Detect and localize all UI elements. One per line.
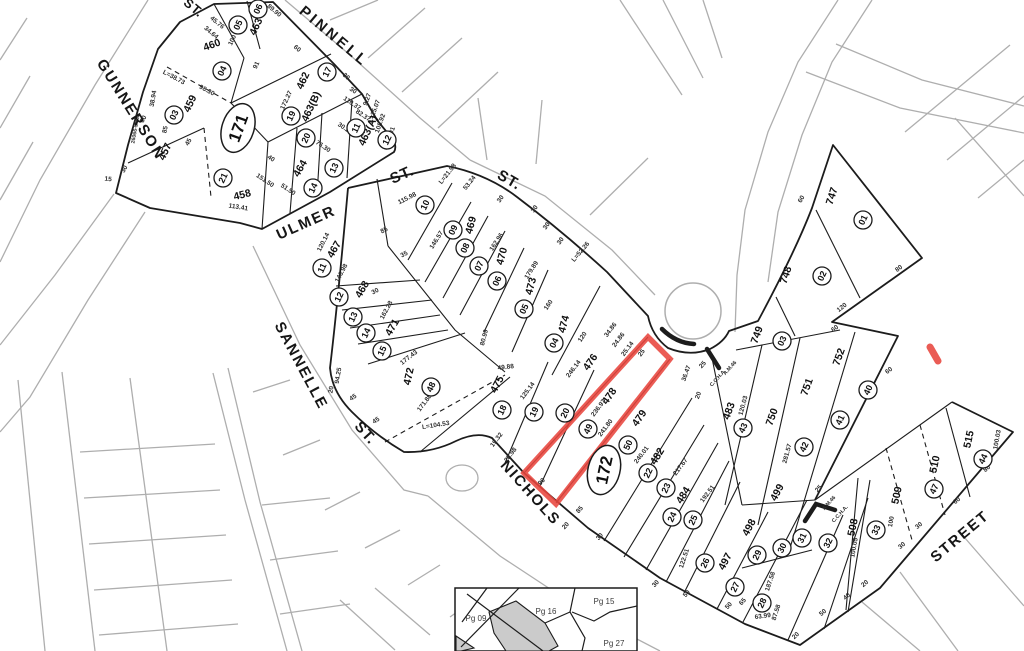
parcel-circle-13: 13 [325, 159, 343, 177]
parcel-circle-22: 22 [639, 464, 657, 482]
background-line [620, 0, 682, 95]
parcel-circle-17: 17 [318, 63, 336, 81]
parcel-circle-13: 13 [344, 308, 362, 326]
dimension-label: 94.25 [334, 367, 344, 385]
dimension-label: 89.90 [265, 3, 282, 19]
lot-number-750: 750 [764, 407, 781, 428]
background-line [438, 72, 498, 128]
inset-page-label: Pg 16 [536, 607, 557, 616]
parcel-circle-41: 41 [831, 411, 849, 429]
dimension-label: L=52.26 [570, 240, 591, 263]
dimension-label: 217.67 [672, 457, 690, 477]
dimension-label: 20 [694, 391, 703, 401]
lot-number-469: 469 [463, 215, 479, 235]
background-line [375, 588, 430, 635]
background-line [130, 378, 167, 651]
background-line [0, 18, 27, 60]
parcel-circle-48: 48 [422, 378, 440, 396]
dimension-label: 30 [496, 194, 506, 204]
tract-circle-labels: 171172 [215, 99, 626, 498]
lot-number-470: 470 [494, 246, 510, 266]
parcel-circle-11: 11 [347, 119, 365, 137]
lot-number-472: 472 [401, 366, 416, 386]
dimension-label: 187.58 [764, 571, 777, 592]
tract-circle-171: 171 [215, 99, 261, 156]
parcel-circle-14: 14 [357, 324, 375, 342]
dimension-label: 87.58 [771, 603, 783, 621]
parcel-circle-06: 06 [249, 0, 267, 18]
parcel-map-svg: 45.7634.6489.901009160172.2730L=38.7398.… [0, 0, 1024, 651]
dimension-label: 60 [952, 496, 962, 506]
parcel-circle-20: 20 [297, 129, 315, 147]
lot-number-475: 475 [488, 374, 507, 395]
lot-number-497: 497 [716, 551, 735, 572]
red-dash-mark [930, 347, 938, 361]
parcel-circle-06: 06 [488, 272, 506, 290]
lot-number-468: 468 [353, 279, 372, 300]
parcel-circle-05: 05 [515, 300, 533, 318]
street-label-sannelle: SANNELLE [271, 319, 331, 412]
dimension-label: 85 [161, 125, 169, 134]
parcel-circle-07: 07 [470, 257, 488, 275]
parcel-circle-29: 29 [748, 546, 766, 564]
lot-number-463(B): 463(B) [299, 90, 323, 124]
parcel-circle-33: 33 [867, 521, 885, 539]
background-line [408, 565, 440, 585]
dimension-label: 60 [797, 194, 807, 204]
parcel-circle-44: 44 [974, 450, 992, 468]
background-line [703, 0, 722, 58]
dimension-label: 30 [371, 287, 381, 297]
dimension-label: 60 [884, 366, 894, 376]
dimension-label: 179.89 [523, 260, 540, 281]
lot-number-747: 747 [824, 186, 841, 207]
dimension-label: C.C.H.A. [709, 368, 728, 388]
background-line [368, 8, 425, 58]
lot-line [336, 280, 420, 286]
parcel-circle-19: 19 [525, 403, 543, 421]
lot-number-460: 460 [202, 36, 223, 53]
background-line [340, 600, 395, 650]
dimension-label: 30 [914, 521, 924, 531]
lot-number-459: 459 [181, 93, 199, 114]
dimension-label: 120 [577, 330, 589, 343]
parcel-map: 45.7634.6489.901009160172.2730L=38.7398.… [0, 0, 1024, 651]
lot-line [231, 58, 244, 103]
dimension-label: 65 [738, 597, 748, 607]
background-line [94, 580, 232, 590]
lot-number-751: 751 [799, 377, 816, 398]
parcel-circle-05: 05 [229, 16, 247, 34]
dimension-label: 177.43 [399, 349, 419, 367]
lot-line [684, 482, 740, 593]
dimension-label: 91 [252, 60, 262, 70]
dimension-label: 160 [543, 298, 555, 311]
parcel-circle-27: 27 [726, 578, 744, 596]
dimension-label: L=38.73 [161, 69, 186, 87]
dimension-label: 49.88 [497, 363, 514, 372]
background-line [768, 0, 872, 282]
background-line [0, 0, 148, 262]
dimension-label: 36.47 [681, 364, 693, 382]
dimension-label: 30 [897, 541, 907, 551]
background-line [663, 0, 703, 78]
dimension-label: 35 [400, 250, 410, 260]
parcel-circle-42: 42 [795, 438, 813, 456]
dimension-label: 76.30 [314, 139, 332, 154]
parcel-circle-03: 03 [165, 106, 183, 124]
parcel-circle-14: 14 [304, 179, 322, 197]
inset-page-label: Pg 09 [466, 614, 487, 623]
dimension-label: 146.57 [428, 230, 445, 251]
lot-line [347, 100, 352, 178]
background-line [0, 142, 33, 200]
dimension-label: 20 [791, 631, 801, 641]
lot-number-749: 749 [749, 325, 766, 346]
lot-number-484: 484 [674, 485, 694, 506]
parcel-circle-19: 19 [282, 107, 300, 125]
parcel-circle-04: 04 [213, 62, 231, 80]
background-line [18, 380, 45, 651]
parcel-circle-49: 49 [579, 420, 597, 438]
parcel-circle-12: 12 [330, 288, 348, 306]
survey-tick [662, 329, 694, 344]
dimension-label: 9.27 [362, 92, 373, 107]
dimension-label: 45 [348, 393, 358, 403]
lot-number-508: 508 [845, 517, 860, 537]
background-line [89, 535, 226, 544]
dimension-label: 60 [292, 44, 302, 54]
dimension-label: 122.51 [678, 548, 691, 569]
lot-line [377, 179, 388, 246]
dimension-label: 60 [830, 324, 840, 334]
dimension-label: 30 [651, 579, 661, 589]
inset-page-label: Pg 15 [594, 597, 615, 606]
parcel-circle-47: 47 [925, 480, 943, 498]
cul-de-sac-circle [665, 283, 721, 339]
background-line [270, 551, 338, 560]
background-line [0, 212, 145, 432]
lot-number-458: 458 [232, 187, 252, 203]
background-line [446, 465, 478, 491]
background-line [213, 373, 287, 651]
dimension-label: 38.94 [149, 90, 159, 108]
background-line [80, 444, 215, 452]
lot-number-464: 464 [291, 158, 310, 179]
dimension-label: 45 [371, 416, 381, 426]
background-line [955, 118, 1024, 196]
dimension-label: 50 [818, 608, 828, 618]
dimension-label: 25 [698, 360, 708, 370]
background-line [0, 76, 30, 128]
parcel-circle-20: 20 [556, 404, 574, 422]
dimension-label: 45 [184, 137, 194, 147]
parcel-circle-08: 08 [456, 239, 474, 257]
parcel-circle-02: 02 [813, 267, 831, 285]
background-line [283, 440, 320, 455]
background-line [862, 602, 920, 651]
parcel-circle-26: 26 [696, 554, 714, 572]
dimension-label: 50 [724, 601, 734, 611]
dimension-label: 113.41 [228, 203, 249, 213]
dashed-line [204, 128, 211, 197]
lot-number-483: 483 [721, 401, 738, 422]
dimension-label: 110.37 [342, 95, 362, 112]
parcel-circle-40: 40 [859, 381, 877, 399]
dimension-label: 146.98 [334, 263, 350, 284]
background-line [900, 572, 958, 651]
street-label-st: ST. [387, 162, 416, 188]
background-line [84, 490, 220, 498]
dimension-label: L=104.53 [422, 420, 451, 431]
lot-number-462: 462 [294, 70, 312, 91]
parcel-circle-24: 24 [663, 508, 681, 526]
page-index-inset-map: Pg 09Pg 16Pg 15Pg 27 [455, 588, 637, 651]
background-line [325, 492, 360, 510]
parcel-circle-12: 12 [378, 131, 396, 149]
parcel-circle-09: 09 [444, 221, 462, 239]
inset-page-label: Pg 27 [604, 639, 625, 648]
background-line [253, 380, 290, 392]
lot-number-748: 748 [778, 265, 795, 286]
parcel-circle-03: 03 [773, 332, 791, 350]
dimension-label: 51.50 [279, 182, 297, 197]
parcel-circle-15: 15 [373, 342, 391, 360]
parcel-circle-50: 50 [619, 436, 637, 454]
parcel-circle-30: 30 [773, 539, 791, 557]
dimension-label: 20 [561, 521, 571, 531]
survey-tick [805, 504, 835, 521]
dimension-label: 19.32 [489, 431, 505, 449]
street-label-gunnerson: GUNNERSON [93, 56, 169, 163]
background-line [947, 96, 1024, 160]
parcel-circle-10: 10 [416, 196, 434, 214]
background-line [228, 368, 302, 651]
parcel-circle-04: 04 [545, 334, 563, 352]
background-line [330, 0, 378, 20]
dimension-label: 85 [380, 226, 390, 236]
dimension-label: 98.30 [198, 84, 216, 98]
lot-number-474: 474 [556, 314, 572, 334]
parcel-circle-23: 23 [657, 479, 675, 497]
dimension-label: 115.98 [397, 191, 418, 206]
background-line [958, 530, 1024, 606]
parcel-circle-31: 31 [793, 529, 811, 547]
lot-line [946, 408, 970, 497]
dimension-label: 85 [575, 505, 585, 515]
dimension-label: 63.99 [754, 612, 771, 621]
parcel-circle-18: 18 [493, 401, 511, 419]
background-line [99, 624, 238, 635]
dimension-label: 20 [860, 579, 870, 589]
street-label-st: ST. [494, 167, 524, 194]
cul-de-sac-bulb [665, 283, 721, 339]
background-line [402, 38, 462, 92]
background-line [590, 158, 648, 215]
parcel-circle-28: 28 [753, 594, 771, 612]
parcel-circle-21: 21 [214, 169, 232, 187]
lot-number-515: 515 [961, 429, 976, 449]
dimension-label: 125.14 [519, 381, 537, 401]
dashed-boundary-lines [167, 67, 945, 540]
background-line [536, 100, 542, 164]
background-line [262, 498, 330, 505]
dimension-label: 100 [887, 515, 896, 527]
background-line [978, 160, 1024, 198]
lot-number-510: 510 [927, 454, 942, 474]
lot-number-463: 463 [247, 16, 265, 37]
lot-number-471: 471 [383, 317, 402, 338]
dimension-label: 80.99 [479, 329, 490, 347]
street-label-st: ST. [181, 0, 207, 20]
background-line [62, 372, 95, 651]
tract-circle-172: 172 [582, 442, 625, 498]
dimension-label: 24.86 [611, 331, 627, 349]
lot-number-499: 499 [768, 482, 787, 503]
parcel-circle-25: 25 [684, 511, 702, 529]
dimension-label: 53.24 [462, 174, 478, 191]
dimension-label: 15 [104, 176, 112, 184]
dimension-label: 30 [556, 236, 566, 246]
street-label-street: STREET [927, 507, 992, 566]
parcel-circle-01: 01 [854, 211, 872, 229]
lot-number-509: 509 [889, 485, 904, 505]
dimension-label: 246.14 [565, 359, 583, 379]
lot-line [776, 297, 795, 336]
dimension-label: 281.57 [782, 443, 794, 464]
background-line [836, 44, 1024, 106]
background-line [0, 194, 114, 345]
lot-lines [128, 1, 970, 640]
background-line [365, 530, 400, 548]
parcel-circle-11: 11 [313, 259, 331, 277]
background-line [478, 98, 487, 160]
parcel-circle-43: 43 [734, 419, 752, 437]
lot-number-476: 476 [581, 352, 601, 373]
dimension-label: 30 [120, 164, 130, 174]
parcel-circle-32: 32 [819, 534, 837, 552]
